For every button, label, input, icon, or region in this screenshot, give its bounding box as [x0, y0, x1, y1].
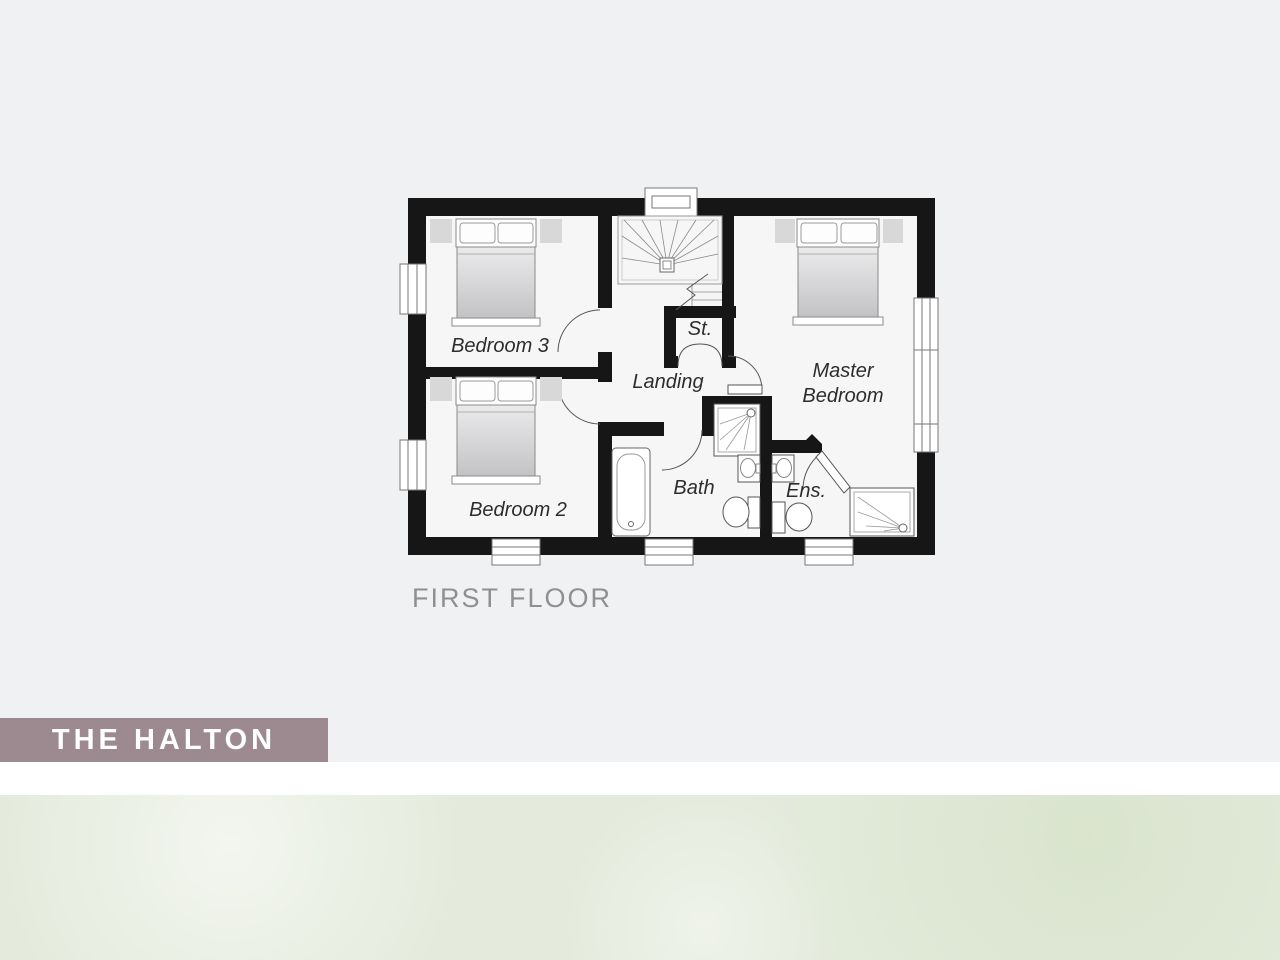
house-type-plate: THE HALTON: [0, 718, 328, 762]
ensuite-toilet: [772, 502, 812, 533]
ensuite-shower: [850, 488, 914, 536]
first-floor-plan: Bedroom 3 Bedroom 2 Landing St. Bath Ens…: [395, 175, 955, 620]
footer-banner: HOBART HALL COMBER ROAD, DUNDONALD AT MI…: [0, 795, 1280, 960]
chimney: [645, 188, 697, 216]
room-label-bedroom3: Bedroom 3: [451, 335, 549, 357]
divider-strip: [0, 762, 1280, 795]
room-label-master-line1: Master: [812, 360, 874, 382]
bath-shower: [714, 404, 760, 456]
floor-caption: FIRST FLOOR: [412, 583, 612, 613]
ensuite-sink: [772, 455, 794, 482]
room-label-bath: Bath: [673, 477, 714, 499]
room-label-landing: Landing: [632, 371, 703, 393]
bathtub: [612, 448, 650, 536]
room-label-ensuite: Ens.: [786, 480, 826, 502]
room-label-store: St.: [688, 318, 712, 340]
bath-sink: [738, 455, 760, 482]
house-type-label: THE HALTON: [52, 724, 276, 757]
room-label-bedroom2: Bedroom 2: [469, 499, 567, 521]
room-label-master-line2: Bedroom: [802, 385, 883, 407]
bath-toilet: [723, 497, 760, 528]
floorplan-flyer-page: Bedroom 3 Bedroom 2 Landing St. Bath Ens…: [0, 0, 1280, 960]
